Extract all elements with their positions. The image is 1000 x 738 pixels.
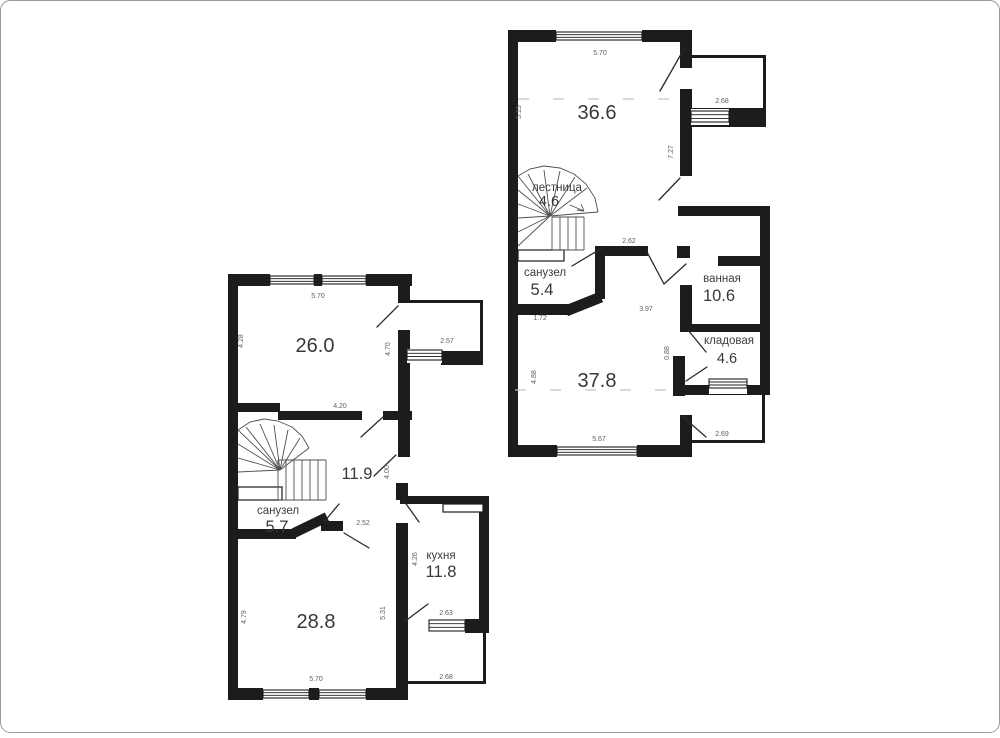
room-area-label: 5.7 [266,518,289,536]
dim-label: 5.70 [309,676,323,683]
dim-label: 2.69 [715,431,729,438]
room-area-label: 28.8 [297,611,336,633]
room-area-label: 4.6 [717,351,737,367]
dim-label: 4.00 [384,465,391,479]
room-area-label: 11.8 [426,563,457,581]
kitchen-counter [443,504,483,512]
dim-label: 2.57 [440,338,454,345]
window [557,445,637,457]
dim-label: 4.79 [241,610,248,624]
dim-label: 4.28 [238,334,245,348]
room-area-label: 5.4 [531,281,554,299]
dim-label: 2.68 [439,674,453,681]
stair-landing [238,487,282,500]
dim-label: 5.31 [380,606,387,620]
room-name-label: ванная [703,273,741,285]
window [709,379,747,394]
page-border [1,1,1000,733]
floor1-plan: 5.70 26.0 4.28 4.70 2.57 4.20 11.9 4.00 … [228,274,489,700]
dim-label: 2.62 [622,238,636,245]
floor2-plan: 5.70 5.15 36.6 2.68 7.27 лестница 4.6 2.… [508,30,770,457]
dim-label: 5.15 [516,105,523,119]
window [691,109,729,125]
window [556,30,642,42]
room-name-label: кухня [426,550,455,562]
dim-label: 1.72 [533,315,547,322]
dim-label: 3.97 [639,306,653,313]
dim-label: 2.52 [356,520,370,527]
dim-label: 4.70 [385,342,392,356]
dim-label: 2.68 [715,98,729,105]
dim-label: 4.20 [333,403,347,410]
window [270,274,314,286]
window [407,349,442,363]
room-name-label: лестница [532,182,582,194]
window [263,688,309,700]
room-area-label: 36.6 [578,102,617,124]
dim-label: 5.70 [311,293,325,300]
room-area-label: 4.6 [539,194,559,210]
dim-label: 5.70 [593,50,607,57]
floor-plan-drawing: 5.70 5.15 36.6 2.68 7.27 лестница 4.6 2.… [0,0,1000,733]
stair-landing [518,250,564,261]
room-area-label: 26.0 [296,335,335,357]
room-name-label: санузел [524,267,566,279]
dim-label: 5.67 [592,436,606,443]
room-area-label: 10.6 [703,287,735,305]
room-name-label: кладовая [704,335,754,347]
room-area-label: 11.9 [342,465,373,483]
window [429,619,465,633]
room-area-label: 37.8 [578,370,617,392]
window [319,688,366,700]
floorplan-canvas: 5.70 5.15 36.6 2.68 7.27 лестница 4.6 2.… [0,0,1000,733]
dim-label: 4.88 [531,370,538,384]
dim-label: 7.27 [668,145,675,159]
dim-label: 2.63 [439,610,453,617]
window [322,274,366,286]
room-name-label: санузел [257,505,299,517]
floor2-ceiling-dashed-lines [515,99,673,390]
dim-label: 4.26 [412,552,419,566]
dim-label: 0.88 [664,346,671,360]
